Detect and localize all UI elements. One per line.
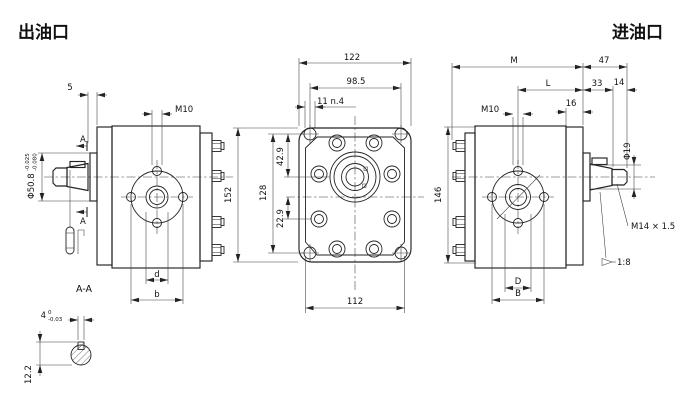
dim-112-label: 112 [347,297,363,307]
corner-mounting-holes [301,125,410,262]
dim-128-label: 128 [259,185,269,201]
dim-key-width: 4 0 -0.03 [41,310,94,340]
dim-thread-14: 14 [614,78,637,90]
shaft-key [592,158,607,165]
section-arrow-a-bottom-label: A [80,217,86,227]
rear-cover-bolts [453,141,465,256]
dim-d-label: d [154,270,159,280]
dim-42-9-label: 42.9 [276,147,286,166]
key-tol-lower: -0.03 [48,317,63,323]
dim-98-5-label: 98.5 [347,77,366,87]
rear-cover [200,133,212,261]
right-side-view: M 47 L 33 14 16 [434,56,675,304]
section-cut-markers: A A [76,135,87,227]
mounting-flange [97,127,112,265]
rear-cover [465,133,475,261]
dim-16-label: 16 [566,99,577,109]
cover-screws [311,135,400,257]
dim-thread-m10-right: M10 [481,105,533,165]
dim-taper-33: 33 [583,79,613,167]
dim-thread-m10-left: M10 [142,105,193,165]
dim-thread-label: M10 [175,105,193,115]
dim-L: L [518,79,583,164]
outlet-title: 出油口 [18,22,69,43]
screw [384,166,400,182]
screw [311,166,327,182]
dim-shaft-dia-19: Φ19 [591,142,641,199]
dim-D-label: D [515,277,522,287]
stud-bolt [453,217,465,228]
dim-152-label: 152 [224,187,234,203]
dim-width-122: 122 [299,53,411,126]
dim-port-spacing: D B [492,204,544,304]
pilot-tol-lower: -0.080 [33,153,39,171]
stud-bolt [212,245,224,256]
dim-flange-16: 16 [556,99,593,126]
key-width-label: 4 [41,311,46,321]
dim-L-label: L [546,79,551,89]
section-label: A-A [76,284,93,295]
key-depth-label: 12.2 [24,365,34,384]
taper-icon [602,259,612,266]
left-side-view: 5 M10 Φ50.8 -0.025 -0.080 A [25,83,233,304]
stud-bolt [212,141,224,152]
dim-hole-note: 11 n.4 [295,97,356,128]
callout-shaft-thread: M14 × 1.5 [617,184,675,232]
retainer-clip [78,230,84,254]
section-arrow-a-top-label: A [80,135,86,145]
mounting-flange [566,127,583,265]
stud-bolt [453,245,465,256]
corner-hole [392,244,410,262]
dim-22-9-label: 22.9 [276,209,286,228]
dim-146-label: 146 [434,187,444,203]
key-tol-upper: 0 [48,310,52,316]
dim-offset-label: 5 [67,83,72,93]
rear-cover-bolts [212,141,224,256]
front-view: 122 98.5 11 n.4 152 128 [224,53,424,313]
dim-key-depth: 12.2 [24,331,77,384]
pilot-tol-upper: -0.025 [25,153,31,171]
dim-offset-5: 5 [67,83,107,143]
dim-thread-label: M10 [481,105,499,115]
dim-b-label: b [154,290,159,300]
dim-33-label: 33 [592,79,603,89]
dim-M-label: M [510,56,517,66]
inlet-title: 进油口 [612,22,663,43]
section-view-aa: A-A 4 0 -0.03 12.2 [24,284,94,384]
dim-14-label: 14 [614,78,625,88]
technical-drawing: 出油口 进油口 [0,0,700,400]
dim-122-label: 122 [344,53,360,63]
section-shaft-circle [71,345,91,365]
stud-bolt [453,171,465,182]
dim-height-146: 146 [434,127,476,263]
taper-ratio-label: 1:8 [617,258,631,268]
dim-hole-note-label: 11 n.4 [317,97,344,107]
stud-bolt [212,171,224,182]
dim-housing-M: M [452,56,583,140]
stud-bolt [212,217,224,228]
dim-phi19-label: Φ19 [623,142,633,160]
dim-center-bottom-22-9: 22.9 [276,197,312,228]
screw [311,211,327,227]
stud-bolt [453,141,465,152]
shaft-thread-label: M14 × 1.5 [631,222,675,232]
gear-pump-drawing-page: 出油口 进油口 [0,0,700,400]
dim-47-label: 47 [599,56,610,66]
callout-taper: 1:8 [600,192,631,268]
key-part [66,227,74,254]
screw [384,211,400,227]
dim-port-spacing: d b [131,204,183,304]
pilot-diameter-label: Φ50.8 [27,173,37,199]
dim-B-label: B [515,289,521,299]
